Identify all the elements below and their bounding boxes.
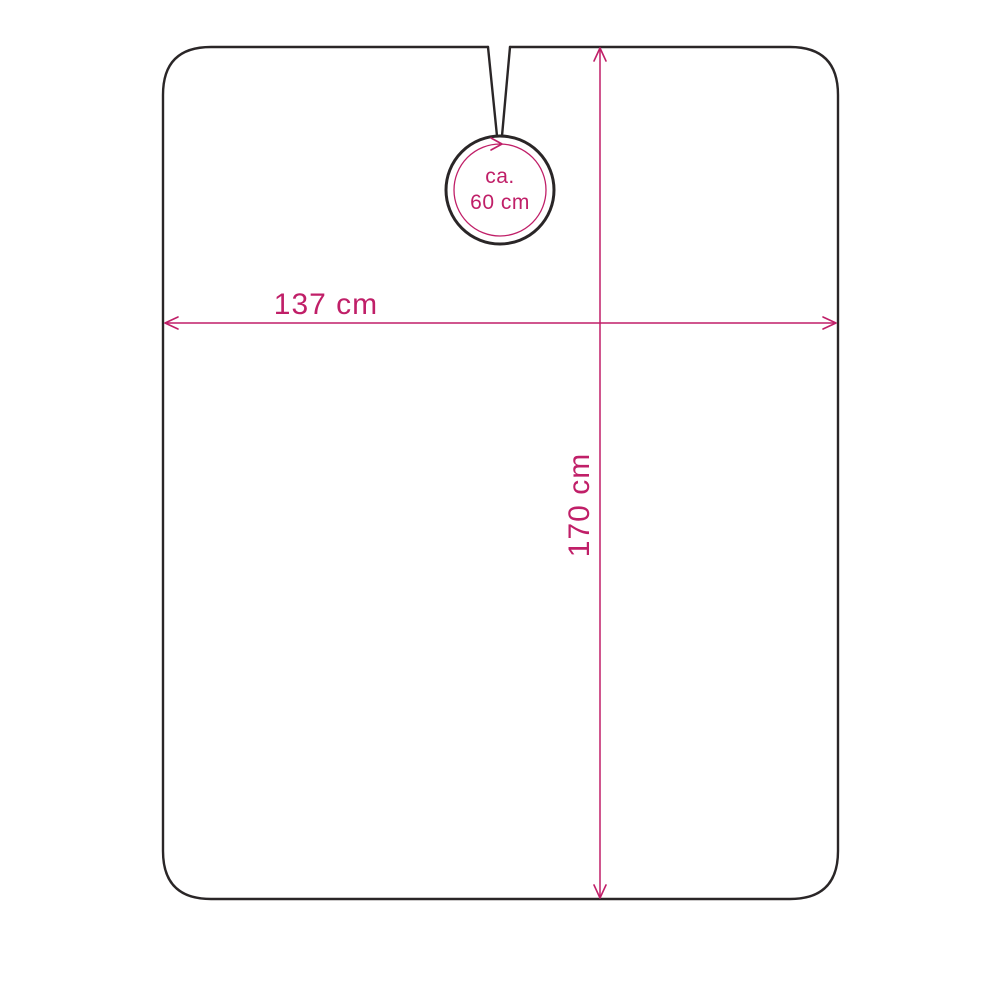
- cape-dimension-diagram: ca. 60 cm 137 cm 170 cm: [0, 0, 1000, 1000]
- neck-opening-circle: [446, 136, 554, 244]
- neckline-notch-right: [502, 47, 510, 136]
- diagram-canvas: ca. 60 cm 137 cm 170 cm: [0, 0, 1000, 1000]
- neck-size-label-line2: 60 cm: [470, 191, 530, 214]
- neckline-notch-left: [488, 47, 497, 136]
- neck-size-label-line1: ca.: [485, 165, 515, 188]
- width-dimension-label: 137 cm: [274, 288, 378, 321]
- height-dimension-label: 170 cm: [563, 453, 596, 557]
